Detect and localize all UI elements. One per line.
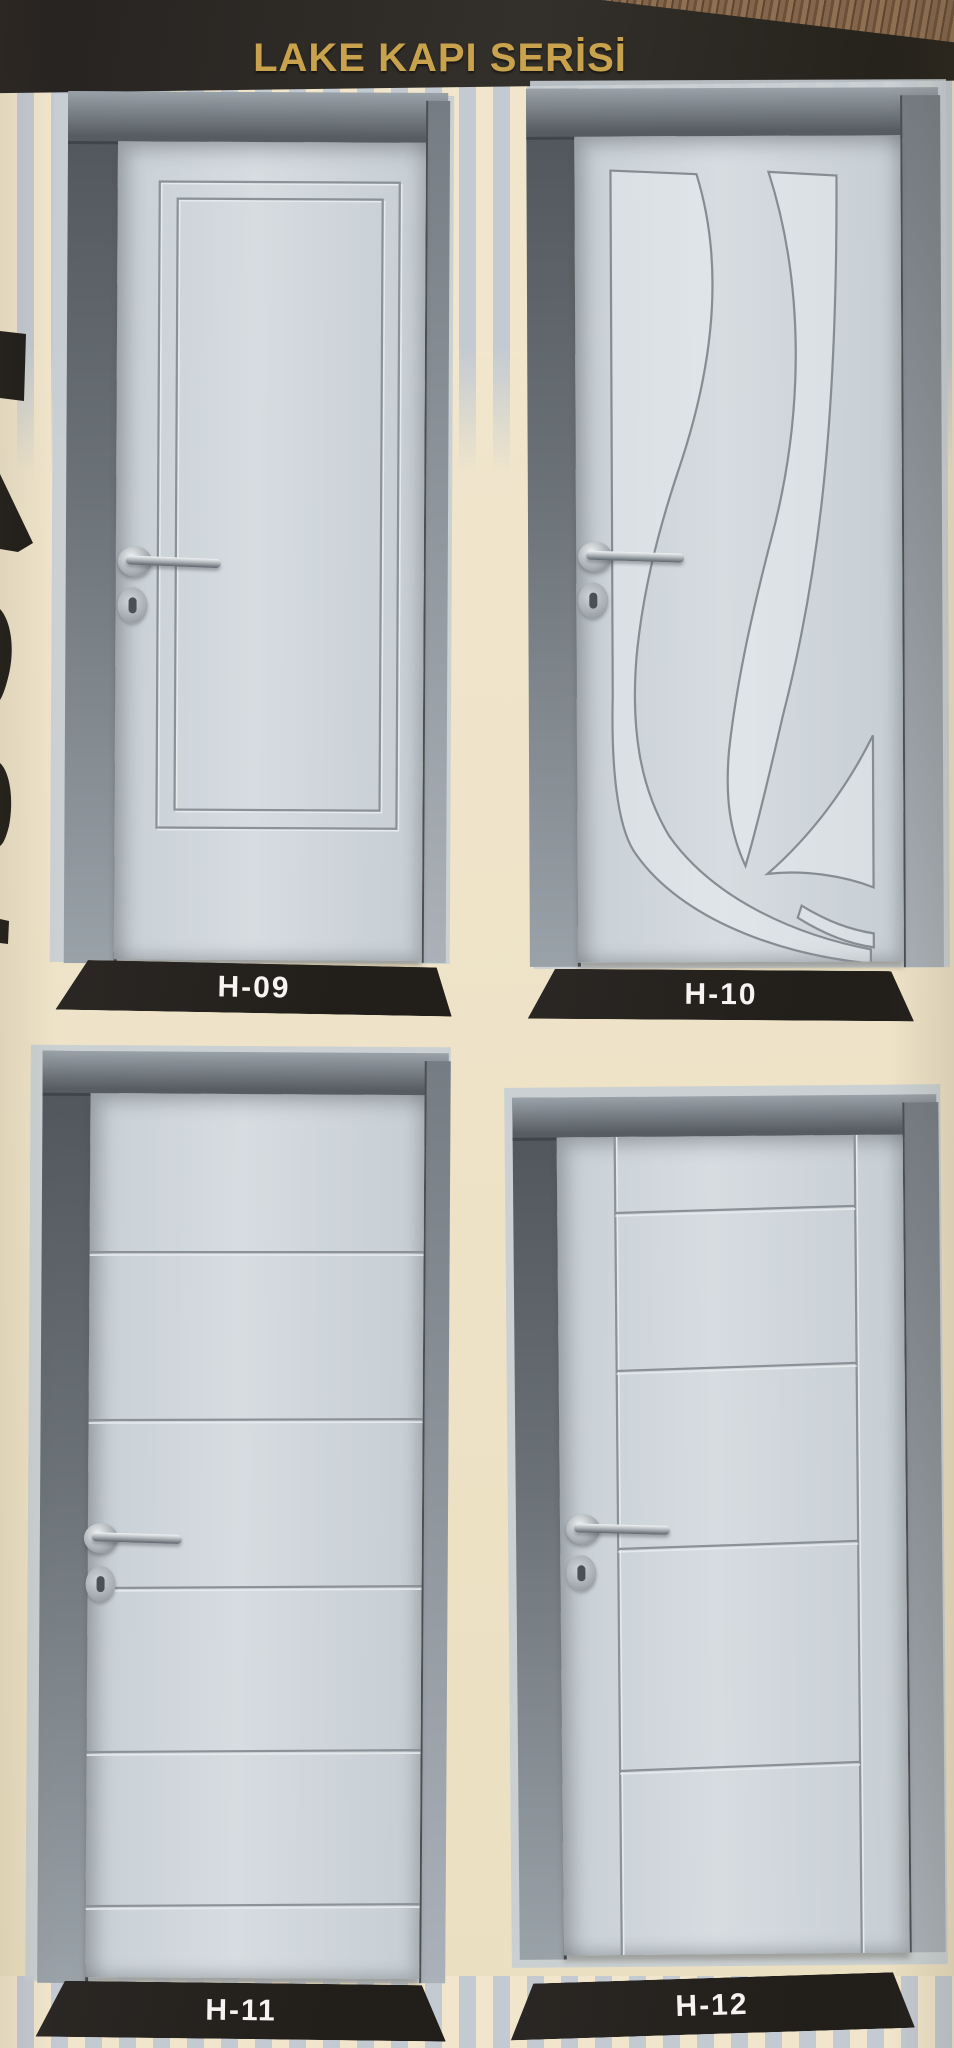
door-photo-h12	[0, 0, 954, 2048]
door-handle	[0, 0, 954, 2048]
catalog-page: LAKE KAPI SERİSİ H-09	[0, 0, 954, 2048]
keyhole-slot	[577, 1565, 585, 1581]
keyhole-escutcheon	[566, 1555, 596, 1591]
door-label-text: H-12	[675, 1988, 749, 2024]
